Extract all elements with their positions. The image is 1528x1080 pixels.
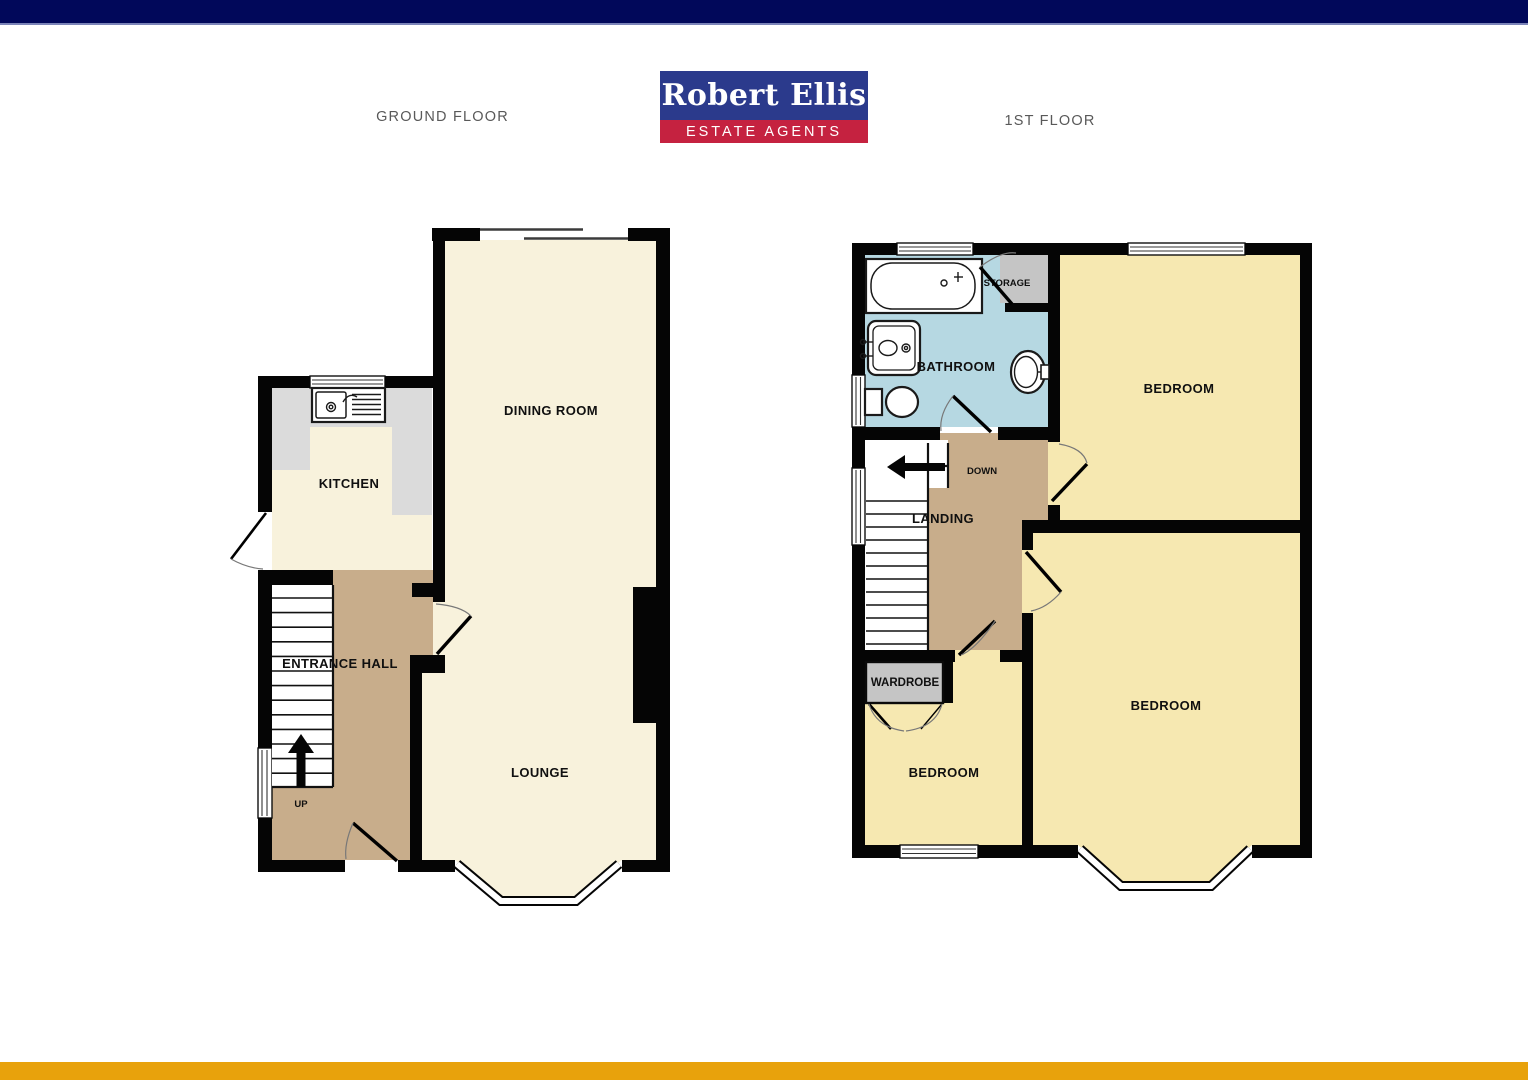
wall <box>865 650 955 662</box>
wardrobe-label: WARDROBE <box>871 677 940 689</box>
bathroom-window <box>897 243 973 255</box>
landing-side-window <box>852 468 865 545</box>
wall <box>622 860 670 872</box>
chimney-breast <box>633 587 656 723</box>
wall <box>385 376 435 388</box>
bedroom-top-window <box>1128 243 1245 255</box>
landing-floor <box>940 433 998 440</box>
first-floor-fills: STORAGE <box>865 255 1300 884</box>
kitchen-hall-opening-floor <box>333 570 433 585</box>
entrance-hall-label: ENTRANCE HALL <box>282 656 398 671</box>
wall <box>998 427 1048 440</box>
bedroom-right-label: BEDROOM <box>1131 698 1202 713</box>
kitchen-door-arc <box>231 559 263 569</box>
wall <box>1022 520 1312 533</box>
bathroom-side-window <box>852 375 865 427</box>
first-floor-plan: STORAGE <box>852 243 1312 886</box>
ground-floor-fills <box>272 240 656 899</box>
dining-room-label: DINING ROOM <box>504 403 598 418</box>
sink-icon <box>861 321 921 375</box>
wall <box>1300 243 1312 858</box>
stairs-down-label: DOWN <box>967 466 997 477</box>
hall-side-window <box>258 748 272 818</box>
floorplan-page: GROUND FLOOR 1ST FLOOR Robert Ellis ESTA… <box>0 0 1528 1080</box>
wall <box>410 673 422 860</box>
wall <box>258 860 345 872</box>
kitchen-label: KITCHEN <box>319 476 380 491</box>
wall <box>1048 505 1060 520</box>
wall <box>865 427 940 440</box>
lounge-floor-left <box>422 655 456 860</box>
wall <box>852 427 865 468</box>
stairs-up-label: UP <box>294 799 308 810</box>
wall <box>258 376 272 512</box>
kitchen-counter-right <box>392 427 432 515</box>
wall <box>258 570 333 585</box>
landing-floor <box>948 440 1048 488</box>
kitchen-sink-icon <box>312 388 385 422</box>
wall <box>852 243 865 375</box>
toilet-icon <box>865 387 918 417</box>
wall <box>433 228 445 602</box>
wall <box>258 585 272 748</box>
landing-label: LANDING <box>912 511 974 526</box>
wall <box>656 228 670 872</box>
kitchen-window <box>310 376 385 388</box>
wall <box>852 545 865 858</box>
bathroom-label: BATHROOM <box>917 359 996 374</box>
wall <box>398 860 455 872</box>
down-arrow-shaft <box>903 463 945 471</box>
wall <box>1000 650 1033 662</box>
wall <box>410 655 445 673</box>
bedroom-left-window <box>900 845 978 858</box>
up-arrow-shaft <box>297 750 306 787</box>
wall <box>978 845 1078 858</box>
wall <box>1022 613 1033 845</box>
bottom-gold-bar <box>0 1062 1528 1080</box>
wall <box>1048 243 1060 442</box>
ground-floor-plan: DINING ROOM KITCHEN ENTRANCE HALL LOUNGE… <box>231 228 670 901</box>
wall <box>852 845 900 858</box>
ground-floor-staircase <box>272 585 333 787</box>
bedroom-top-label: BEDROOM <box>1144 381 1215 396</box>
landing-floor <box>928 520 1022 650</box>
floorplan-canvas: DINING ROOM KITCHEN ENTRANCE HALL LOUNGE… <box>0 0 1528 1080</box>
lounge-label: LOUNGE <box>511 765 569 780</box>
bedroom-right-floor <box>1033 533 1300 845</box>
wall <box>1022 533 1033 550</box>
wall <box>1252 845 1312 858</box>
wall <box>943 662 953 703</box>
kitchen-counter-left <box>272 427 310 470</box>
wall <box>412 583 443 597</box>
bathtub-icon <box>866 259 982 313</box>
bedroom-left-label: BEDROOM <box>909 765 980 780</box>
kitchen-door-leaf <box>231 513 266 559</box>
